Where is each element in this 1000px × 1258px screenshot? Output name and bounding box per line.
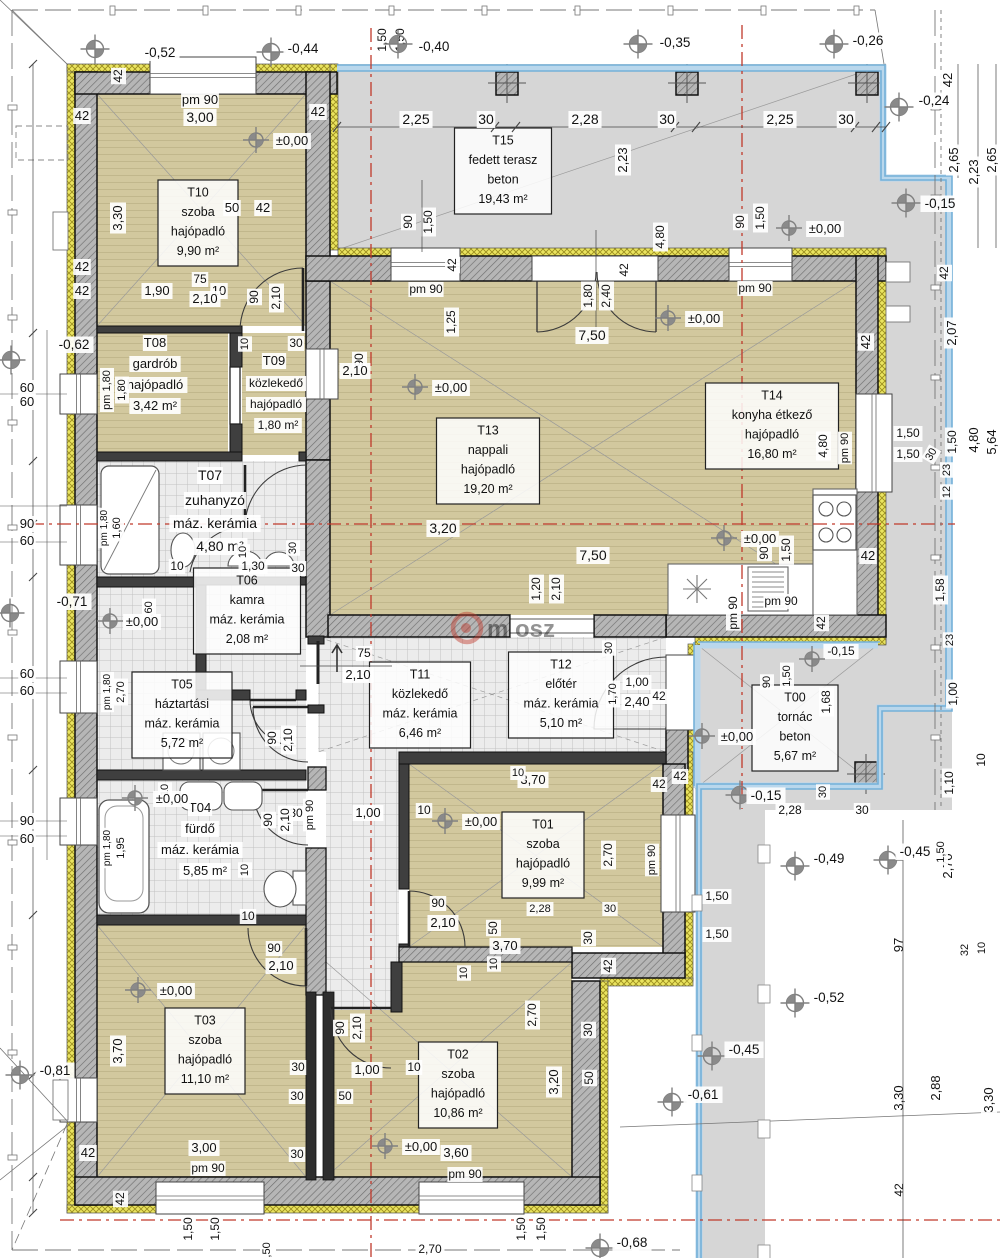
svg-text:2,25: 2,25 bbox=[766, 111, 793, 127]
svg-text:1,00: 1,00 bbox=[946, 682, 960, 706]
svg-text:1,50: 1,50 bbox=[705, 927, 729, 941]
svg-text:zuhanyzó: zuhanyzó bbox=[185, 492, 245, 508]
svg-text:T06: T06 bbox=[236, 574, 258, 588]
svg-text:2,70: 2,70 bbox=[418, 1242, 442, 1256]
svg-text:5,85 m²: 5,85 m² bbox=[183, 863, 228, 878]
svg-text:1,50: 1,50 bbox=[208, 1217, 222, 1241]
svg-text:-0,62: -0,62 bbox=[59, 337, 90, 352]
svg-text:hajópadló: hajópadló bbox=[171, 225, 225, 239]
svg-text:T14: T14 bbox=[761, 389, 783, 403]
svg-text:-0,61: -0,61 bbox=[688, 1087, 719, 1102]
svg-text:-0,45: -0,45 bbox=[729, 1042, 760, 1057]
svg-text:kamra: kamra bbox=[230, 593, 265, 607]
svg-text:2,40: 2,40 bbox=[599, 284, 613, 308]
svg-text:1,60: 1,60 bbox=[111, 517, 123, 538]
svg-text:T10: T10 bbox=[187, 186, 209, 200]
svg-text:42: 42 bbox=[311, 104, 325, 119]
svg-text:T03: T03 bbox=[194, 1014, 216, 1028]
svg-text:1,95: 1,95 bbox=[115, 837, 127, 858]
svg-text:5,67 m²: 5,67 m² bbox=[774, 749, 816, 763]
svg-text:19,43 m²: 19,43 m² bbox=[478, 192, 527, 206]
svg-text:fürdő: fürdő bbox=[185, 821, 215, 836]
svg-text:75: 75 bbox=[357, 646, 371, 660]
svg-text:30: 30 bbox=[603, 642, 615, 654]
svg-text:-0,15: -0,15 bbox=[925, 196, 956, 211]
svg-text:2,23: 2,23 bbox=[615, 147, 630, 172]
svg-text:4,80: 4,80 bbox=[816, 434, 830, 458]
svg-text:90: 90 bbox=[261, 813, 275, 827]
svg-text:3,00: 3,00 bbox=[191, 1140, 216, 1155]
svg-text:2,10: 2,10 bbox=[269, 286, 283, 310]
svg-text:T02: T02 bbox=[447, 1048, 469, 1062]
svg-text:1,80: 1,80 bbox=[116, 379, 128, 400]
svg-text:szoba: szoba bbox=[188, 1033, 221, 1047]
svg-text:T11: T11 bbox=[410, 668, 431, 682]
svg-text:1,50: 1,50 bbox=[935, 841, 947, 862]
svg-text:tornác: tornác bbox=[778, 710, 813, 724]
svg-text:-0,49: -0,49 bbox=[814, 851, 845, 866]
svg-text:2,65: 2,65 bbox=[946, 147, 961, 172]
svg-text:2,70: 2,70 bbox=[115, 681, 127, 702]
svg-text:-0,15: -0,15 bbox=[751, 788, 782, 803]
svg-text:1,50: 1,50 bbox=[534, 1217, 548, 1241]
svg-text:10: 10 bbox=[976, 942, 988, 954]
svg-text:3,20: 3,20 bbox=[546, 1069, 561, 1094]
svg-text:T04: T04 bbox=[189, 800, 211, 815]
svg-text:pm 90: pm 90 bbox=[448, 1167, 482, 1181]
svg-text:7,50: 7,50 bbox=[578, 327, 605, 343]
svg-text:42: 42 bbox=[81, 1145, 95, 1160]
svg-text:2,70: 2,70 bbox=[601, 843, 615, 867]
svg-text:23: 23 bbox=[941, 464, 953, 476]
svg-text:42: 42 bbox=[861, 548, 875, 563]
svg-text:2,40: 2,40 bbox=[624, 694, 649, 709]
svg-text:90: 90 bbox=[247, 290, 261, 304]
svg-text:5,72 m²: 5,72 m² bbox=[161, 736, 203, 750]
svg-text:10: 10 bbox=[488, 958, 500, 970]
svg-text:42: 42 bbox=[652, 689, 666, 703]
svg-text:2,10: 2,10 bbox=[430, 915, 455, 930]
svg-text:1,25: 1,25 bbox=[444, 310, 458, 334]
svg-text:30: 30 bbox=[581, 931, 595, 945]
svg-text:30: 30 bbox=[478, 111, 494, 127]
svg-text:19,20 m²: 19,20 m² bbox=[463, 482, 512, 496]
svg-text:-0,44: -0,44 bbox=[288, 41, 319, 56]
svg-text:30: 30 bbox=[290, 1147, 304, 1161]
svg-text:10: 10 bbox=[407, 1060, 421, 1074]
svg-text:T05: T05 bbox=[171, 678, 193, 692]
svg-text:30: 30 bbox=[581, 1023, 595, 1037]
svg-text:30: 30 bbox=[289, 336, 303, 350]
svg-text:90: 90 bbox=[401, 215, 415, 229]
svg-text:60: 60 bbox=[20, 683, 34, 698]
svg-text:1,50: 1,50 bbox=[779, 538, 793, 562]
svg-text:50: 50 bbox=[338, 1089, 352, 1103]
svg-text:±0,00: ±0,00 bbox=[405, 1139, 437, 1154]
svg-text:±0,00: ±0,00 bbox=[688, 311, 720, 326]
svg-text:30: 30 bbox=[855, 803, 869, 817]
svg-text:T13: T13 bbox=[477, 424, 499, 438]
svg-text:T09: T09 bbox=[263, 353, 285, 368]
svg-text:máz. kerámia: máz. kerámia bbox=[144, 717, 219, 731]
svg-text:pm 90: pm 90 bbox=[764, 594, 798, 608]
svg-text:1,10: 1,10 bbox=[942, 771, 956, 795]
svg-text:±0,00: ±0,00 bbox=[744, 531, 776, 546]
svg-text:nappali: nappali bbox=[468, 443, 508, 457]
svg-text:42: 42 bbox=[652, 777, 666, 791]
svg-text:-0,81: -0,81 bbox=[40, 1063, 71, 1078]
svg-text:4,80: 4,80 bbox=[653, 225, 667, 249]
svg-text:90: 90 bbox=[757, 546, 771, 560]
svg-text:hajópadló: hajópadló bbox=[516, 857, 570, 871]
svg-text:42: 42 bbox=[673, 769, 687, 783]
svg-text:hajópadló: hajópadló bbox=[461, 463, 515, 477]
svg-text:2,23: 2,23 bbox=[966, 159, 981, 184]
svg-text:90: 90 bbox=[733, 215, 747, 229]
svg-text:-0,24: -0,24 bbox=[919, 93, 950, 108]
svg-text:konyha étkező: konyha étkező bbox=[732, 408, 813, 422]
svg-text:10: 10 bbox=[241, 909, 255, 923]
svg-text:hajópadló: hajópadló bbox=[250, 397, 302, 411]
svg-text:1,20: 1,20 bbox=[529, 577, 543, 601]
svg-text:előtér: előtér bbox=[545, 677, 576, 691]
svg-text:2,70: 2,70 bbox=[525, 1003, 539, 1027]
svg-text:szoba: szoba bbox=[441, 1067, 474, 1081]
svg-text:60: 60 bbox=[20, 380, 34, 395]
svg-text:pm 90: pm 90 bbox=[304, 800, 316, 831]
svg-text:pm 1,80: pm 1,80 bbox=[102, 829, 113, 866]
svg-text:9,99 m²: 9,99 m² bbox=[522, 876, 564, 890]
svg-text:42: 42 bbox=[75, 259, 89, 274]
svg-text:5,64: 5,64 bbox=[984, 429, 999, 454]
svg-text:60: 60 bbox=[20, 533, 34, 548]
svg-text:50: 50 bbox=[582, 1071, 596, 1085]
svg-text:máz. kerámia: máz. kerámia bbox=[523, 697, 598, 711]
svg-text:háztartási: háztartási bbox=[155, 697, 209, 711]
svg-text:3,30: 3,30 bbox=[981, 1087, 996, 1112]
svg-text:10: 10 bbox=[239, 864, 251, 876]
svg-text:3,30: 3,30 bbox=[891, 1085, 906, 1110]
svg-text:T00: T00 bbox=[784, 691, 806, 705]
svg-text:6,46 m²: 6,46 m² bbox=[399, 726, 441, 740]
svg-text:2,08 m²: 2,08 m² bbox=[226, 632, 268, 646]
svg-text:1,80: 1,80 bbox=[581, 284, 595, 308]
svg-text:3,30: 3,30 bbox=[110, 205, 125, 230]
svg-text:-0,45: -0,45 bbox=[900, 844, 931, 859]
svg-text:pm 90: pm 90 bbox=[726, 596, 740, 630]
svg-text:10: 10 bbox=[974, 753, 988, 767]
svg-text:1,50: 1,50 bbox=[514, 1217, 528, 1241]
svg-text:pm 90: pm 90 bbox=[182, 92, 218, 107]
svg-text:42: 42 bbox=[256, 200, 270, 215]
svg-text:pm 90: pm 90 bbox=[738, 281, 772, 295]
svg-text:60: 60 bbox=[20, 831, 34, 846]
svg-text:hajópadló: hajópadló bbox=[431, 1087, 485, 1101]
svg-text:közlekedő: közlekedő bbox=[249, 376, 303, 390]
svg-text:97: 97 bbox=[891, 938, 906, 952]
svg-text:pm 90: pm 90 bbox=[191, 1161, 225, 1175]
svg-text:2,28: 2,28 bbox=[778, 803, 802, 817]
svg-text:hajópadló: hajópadló bbox=[745, 428, 799, 442]
svg-text:10: 10 bbox=[237, 546, 249, 558]
svg-text:máz. kerámia: máz. kerámia bbox=[209, 613, 284, 627]
svg-text:3,42 m²: 3,42 m² bbox=[133, 398, 178, 413]
svg-text:10,86 m²: 10,86 m² bbox=[433, 1106, 482, 1120]
svg-text:pm 90: pm 90 bbox=[839, 433, 851, 464]
svg-text:-0,35: -0,35 bbox=[660, 35, 691, 50]
svg-text:1,00: 1,00 bbox=[355, 805, 380, 820]
svg-text:-0,15: -0,15 bbox=[827, 644, 855, 658]
svg-text:30: 30 bbox=[817, 786, 829, 798]
svg-text:16,80 m²: 16,80 m² bbox=[747, 447, 796, 461]
svg-text:pm 1,80: pm 1,80 bbox=[101, 370, 113, 410]
svg-text:7,50: 7,50 bbox=[579, 547, 606, 563]
svg-text:1,00: 1,00 bbox=[354, 1062, 379, 1077]
svg-text:1,00: 1,00 bbox=[625, 675, 649, 689]
svg-text:1,50: 1,50 bbox=[705, 889, 729, 903]
svg-text:1,30: 1,30 bbox=[241, 559, 265, 573]
svg-text:11,10 m²: 11,10 m² bbox=[181, 1072, 229, 1086]
svg-text:4,80: 4,80 bbox=[966, 427, 981, 452]
svg-text:2,07: 2,07 bbox=[944, 320, 959, 345]
svg-text:1,50: 1,50 bbox=[896, 426, 920, 440]
svg-text:hajópadló: hajópadló bbox=[127, 377, 183, 392]
svg-text:90: 90 bbox=[431, 896, 445, 910]
svg-text:m osz: m osz bbox=[487, 616, 555, 643]
svg-text:2,25: 2,25 bbox=[402, 111, 429, 127]
svg-text:1,68: 1,68 bbox=[819, 690, 833, 714]
svg-text:2,10: 2,10 bbox=[342, 363, 367, 378]
svg-text:42: 42 bbox=[113, 1192, 127, 1206]
svg-text:10: 10 bbox=[458, 967, 470, 979]
svg-text:1,70: 1,70 bbox=[607, 683, 619, 704]
svg-text:2,10: 2,10 bbox=[268, 958, 293, 973]
svg-text:42: 42 bbox=[937, 266, 951, 280]
svg-text:30: 30 bbox=[287, 542, 299, 554]
svg-text:42: 42 bbox=[111, 69, 125, 83]
svg-text:90: 90 bbox=[761, 676, 773, 688]
svg-text:2,10: 2,10 bbox=[549, 577, 563, 601]
svg-text:2,10: 2,10 bbox=[281, 728, 295, 752]
svg-text:2,10: 2,10 bbox=[278, 808, 292, 832]
svg-text:30: 30 bbox=[838, 111, 854, 127]
svg-text:-0,71: -0,71 bbox=[57, 594, 88, 609]
svg-text:3,20: 3,20 bbox=[429, 520, 456, 536]
svg-text:30: 30 bbox=[659, 111, 675, 127]
svg-text:T15: T15 bbox=[492, 134, 514, 148]
svg-text:90: 90 bbox=[333, 1021, 347, 1035]
svg-text:42: 42 bbox=[858, 335, 873, 349]
svg-text:1,50: 1,50 bbox=[181, 1217, 195, 1241]
svg-text:±0,00: ±0,00 bbox=[126, 614, 158, 629]
svg-text:42: 42 bbox=[814, 616, 828, 630]
svg-text:közlekedő: közlekedő bbox=[392, 687, 448, 701]
svg-text:3,70: 3,70 bbox=[110, 1038, 125, 1063]
svg-text:3,00: 3,00 bbox=[186, 109, 213, 125]
svg-text:-0,26: -0,26 bbox=[853, 33, 884, 48]
svg-text:42: 42 bbox=[892, 1183, 906, 1197]
svg-text:42: 42 bbox=[75, 283, 89, 298]
svg-text:szoba: szoba bbox=[526, 837, 559, 851]
svg-text:1,50: 1,50 bbox=[896, 447, 920, 461]
svg-text:23: 23 bbox=[944, 634, 956, 646]
svg-text:2,10: 2,10 bbox=[192, 291, 217, 306]
svg-text:T08: T08 bbox=[144, 335, 166, 350]
svg-text:T01: T01 bbox=[532, 818, 554, 832]
svg-text:90: 90 bbox=[20, 813, 34, 828]
svg-text:50: 50 bbox=[225, 200, 239, 215]
svg-text:12: 12 bbox=[941, 486, 953, 498]
svg-text:beton: beton bbox=[487, 173, 518, 187]
svg-text:±0,00: ±0,00 bbox=[156, 791, 188, 806]
svg-text:1,50: 1,50 bbox=[945, 430, 959, 454]
svg-text:10: 10 bbox=[239, 338, 251, 350]
svg-text:hajópadló: hajópadló bbox=[178, 1053, 232, 1067]
svg-text:1,50: 1,50 bbox=[781, 665, 793, 686]
svg-text:pm 90: pm 90 bbox=[409, 282, 443, 296]
svg-text:gardrób: gardrób bbox=[133, 356, 178, 371]
svg-text:90: 90 bbox=[267, 941, 281, 955]
svg-text:-0,40: -0,40 bbox=[419, 39, 450, 54]
svg-text:T07: T07 bbox=[198, 467, 222, 483]
svg-text:2,28: 2,28 bbox=[529, 903, 550, 915]
svg-text:60: 60 bbox=[20, 666, 34, 681]
svg-text:10: 10 bbox=[417, 803, 431, 817]
svg-text:2,10: 2,10 bbox=[350, 1016, 364, 1040]
svg-text:±0,00: ±0,00 bbox=[809, 221, 841, 236]
svg-text:±0,00: ±0,00 bbox=[276, 133, 308, 148]
svg-text:1,50: 1,50 bbox=[421, 210, 435, 234]
svg-text:3,70: 3,70 bbox=[492, 938, 517, 953]
svg-text:2,28: 2,28 bbox=[571, 111, 598, 127]
svg-text:±0,00: ±0,00 bbox=[435, 380, 467, 395]
svg-text:1,90: 1,90 bbox=[144, 283, 169, 298]
svg-text:42: 42 bbox=[601, 959, 615, 973]
svg-text:2,65: 2,65 bbox=[984, 147, 999, 172]
svg-text:42: 42 bbox=[445, 258, 459, 272]
svg-text:50: 50 bbox=[486, 921, 500, 935]
svg-text:90: 90 bbox=[20, 516, 34, 531]
svg-text:30: 30 bbox=[291, 1060, 305, 1074]
svg-text:fedett terasz: fedett terasz bbox=[469, 153, 538, 167]
svg-text:2,88: 2,88 bbox=[928, 1075, 943, 1100]
svg-text:szoba: szoba bbox=[181, 205, 214, 219]
svg-text:±0,00: ±0,00 bbox=[160, 983, 192, 998]
svg-text:pm 1,80: pm 1,80 bbox=[99, 509, 110, 546]
svg-text:10: 10 bbox=[512, 767, 524, 779]
svg-text:1,50: 1,50 bbox=[753, 206, 767, 230]
svg-text:-0,52: -0,52 bbox=[814, 990, 845, 1005]
svg-text:pm 1,80: pm 1,80 bbox=[102, 673, 113, 710]
svg-text:60: 60 bbox=[20, 394, 34, 409]
svg-text:10: 10 bbox=[170, 559, 184, 573]
svg-text:32: 32 bbox=[959, 944, 971, 956]
svg-text:máz. kerámia: máz. kerámia bbox=[382, 707, 457, 721]
svg-text:30: 30 bbox=[604, 903, 616, 915]
svg-text:T12: T12 bbox=[550, 658, 572, 672]
svg-text:9,90 m²: 9,90 m² bbox=[177, 244, 219, 258]
svg-text:1,80 m²: 1,80 m² bbox=[258, 418, 299, 432]
svg-text:±0,00: ±0,00 bbox=[721, 729, 753, 744]
svg-text:30: 30 bbox=[291, 561, 305, 575]
svg-text:30: 30 bbox=[290, 1089, 304, 1103]
svg-text:máz. kerámia: máz. kerámia bbox=[173, 515, 257, 531]
svg-text:-0,68: -0,68 bbox=[617, 1235, 648, 1250]
svg-text:beton: beton bbox=[779, 730, 810, 744]
svg-text:2,10: 2,10 bbox=[345, 667, 370, 682]
svg-text:pm 90: pm 90 bbox=[646, 845, 658, 876]
svg-text:1,58: 1,58 bbox=[933, 578, 947, 602]
svg-text:-0,52: -0,52 bbox=[145, 45, 176, 60]
svg-text:90: 90 bbox=[265, 731, 279, 745]
svg-text:1,50: 1,50 bbox=[375, 28, 389, 52]
svg-text:42: 42 bbox=[75, 108, 89, 123]
svg-text:±0,00: ±0,00 bbox=[465, 814, 497, 829]
svg-text:1,50: 1,50 bbox=[261, 1242, 273, 1258]
svg-text:3,60: 3,60 bbox=[443, 1145, 468, 1160]
svg-text:42: 42 bbox=[940, 73, 955, 87]
svg-text:5,10 m²: 5,10 m² bbox=[540, 716, 582, 730]
svg-text:42: 42 bbox=[617, 263, 631, 277]
svg-text:máz. kerámia: máz. kerámia bbox=[161, 842, 240, 857]
svg-text:75: 75 bbox=[193, 272, 207, 286]
